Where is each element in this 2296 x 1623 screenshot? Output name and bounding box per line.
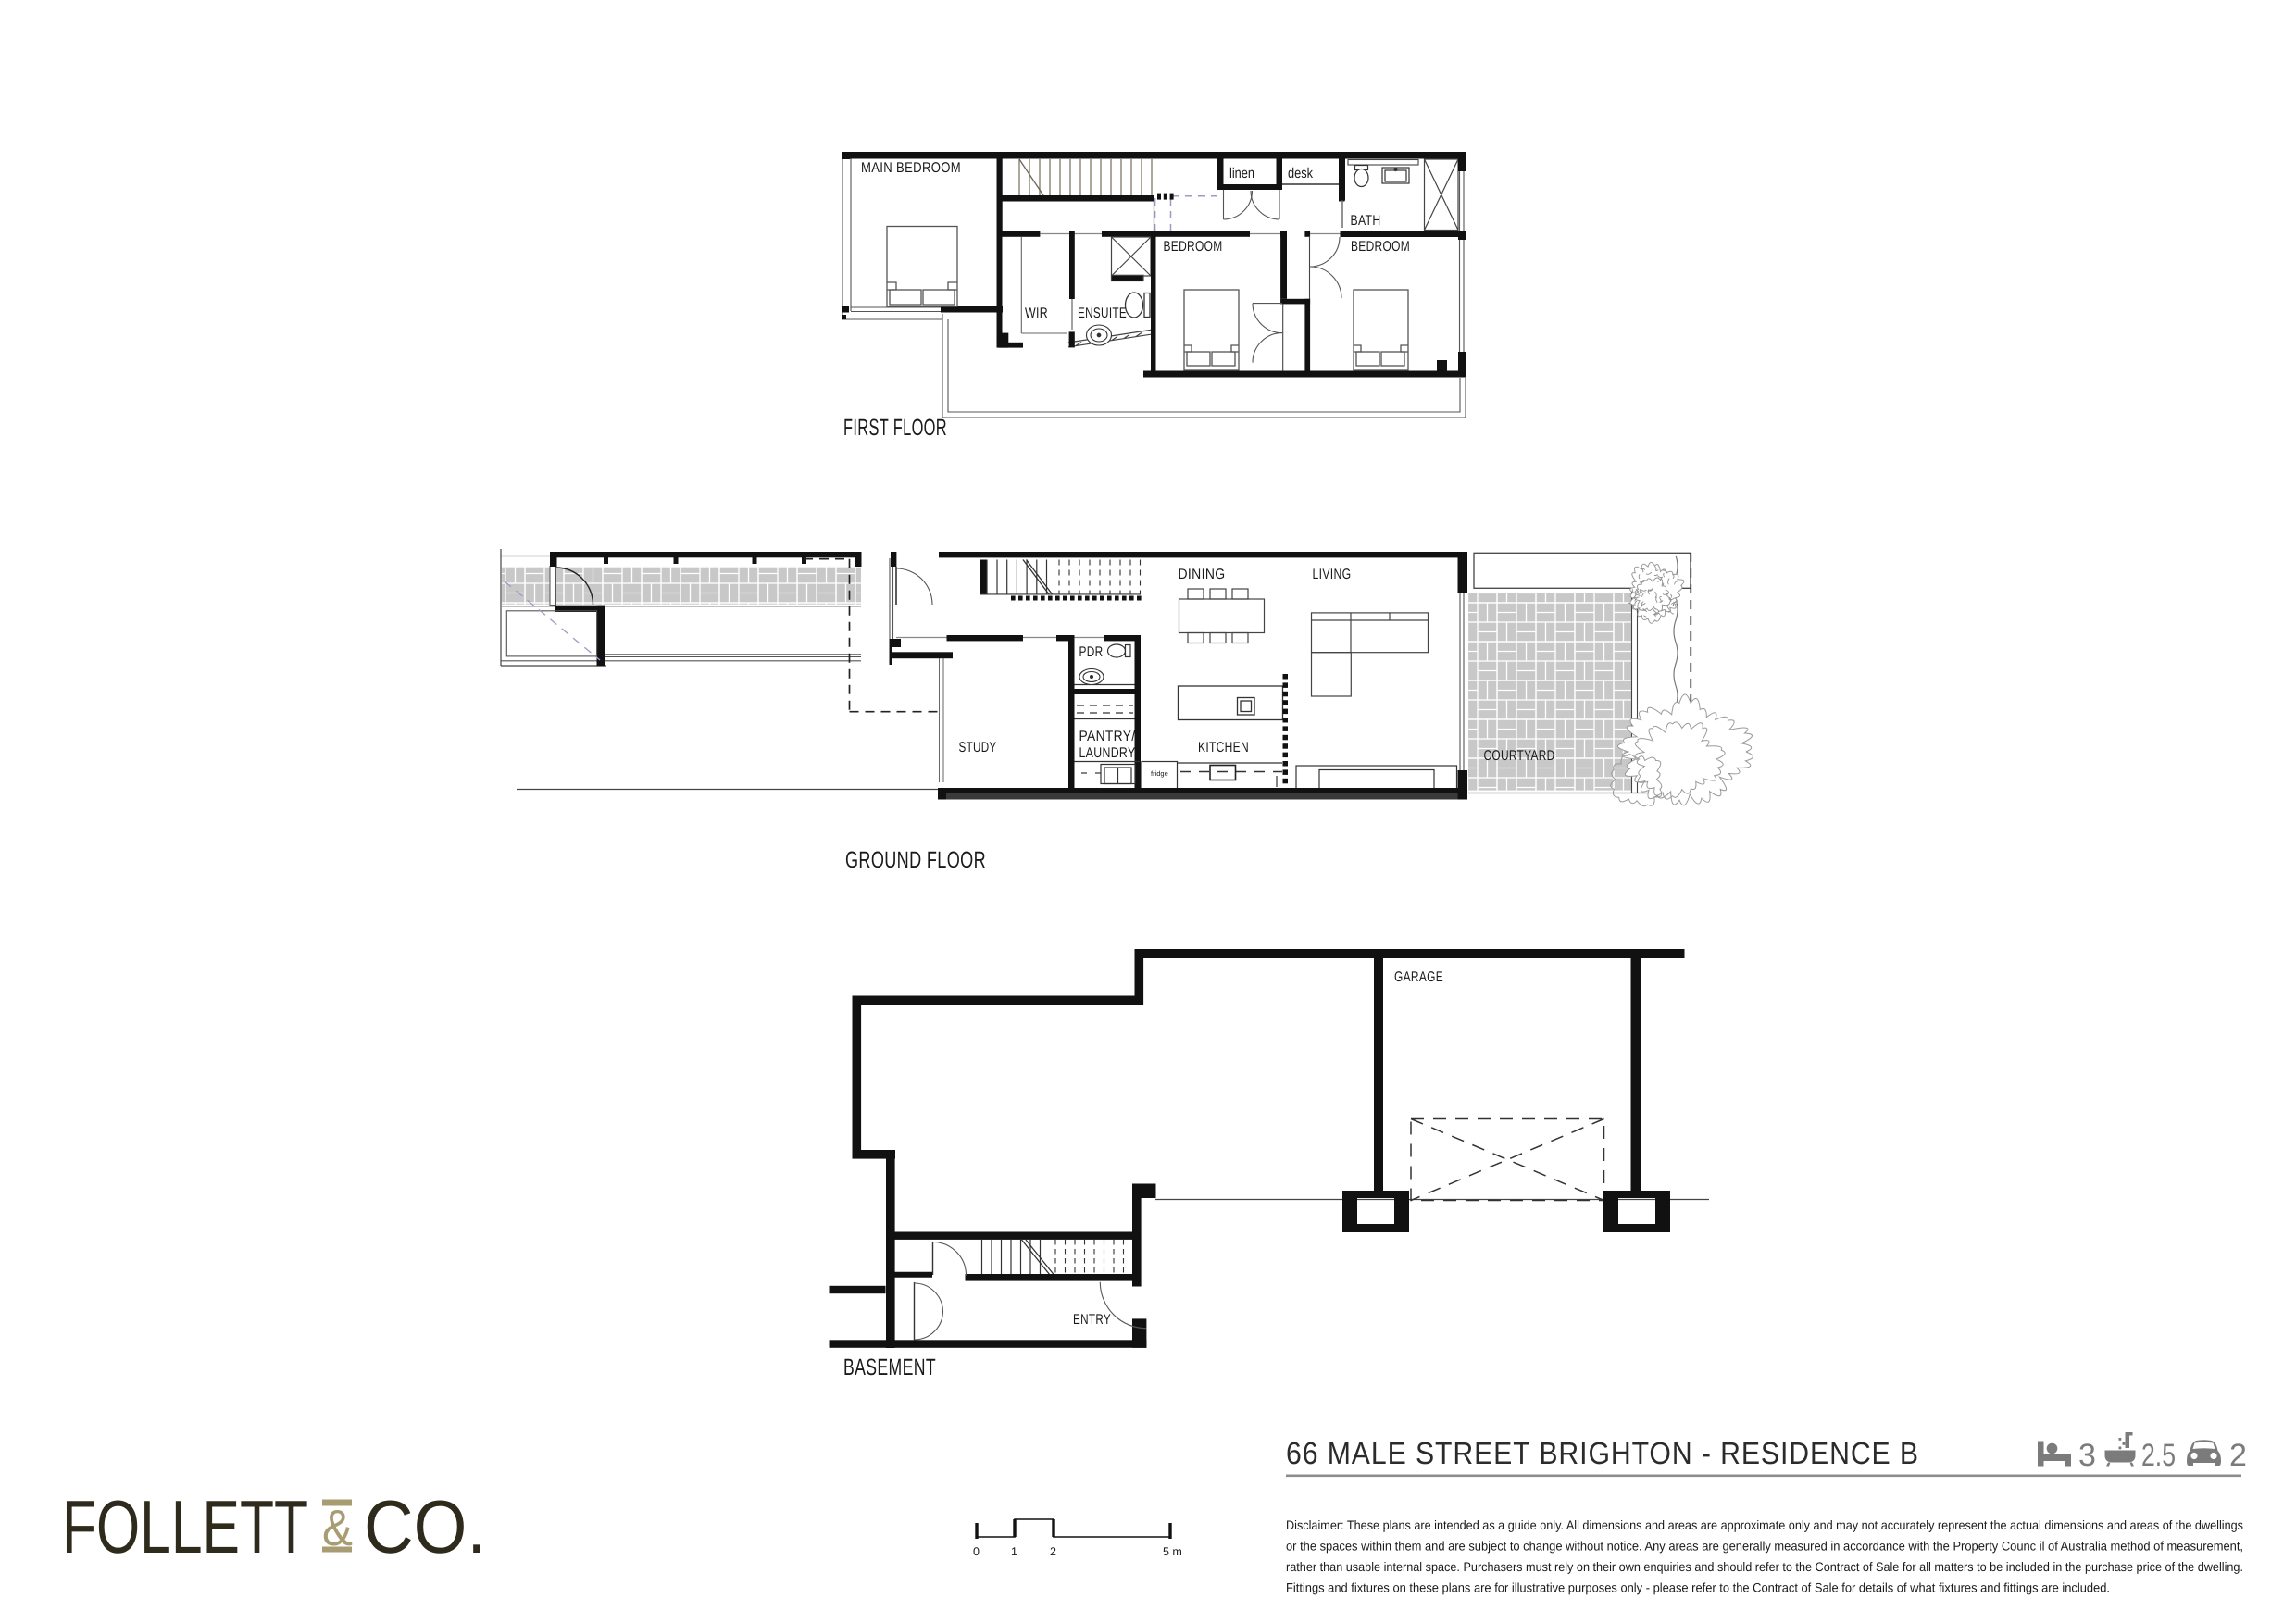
svg-text:BEDROOM: BEDROOM [1351,239,1410,255]
svg-text:fridge: fridge [1151,769,1168,778]
svg-text:ENSUITE: ENSUITE [1078,306,1127,321]
svg-text:DINING: DINING [1179,567,1226,582]
svg-text:GROUND FLOOR: GROUND FLOOR [845,847,986,873]
svg-text:COURTYARD: COURTYARD [1484,748,1555,764]
svg-text:3: 3 [2078,1438,2096,1473]
svg-text:LIVING: LIVING [1313,567,1352,582]
svg-text:BEDROOM: BEDROOM [1164,239,1223,255]
svg-text:linen: linen [1229,166,1254,181]
svg-text:Fittings and fixtures on these: Fittings and fixtures on these plans are… [1286,1581,2110,1595]
svg-text:2: 2 [1050,1545,1056,1558]
svg-text:FIRST FLOOR: FIRST FLOOR [843,415,947,441]
svg-text:1: 1 [1011,1545,1017,1558]
svg-text:BATH: BATH [1351,213,1381,229]
svg-text:MAIN BEDROOM: MAIN BEDROOM [861,160,961,176]
svg-text:PDR: PDR [1079,644,1104,660]
svg-text:or the spaces within them and: or the spaces within them and are subjec… [1286,1540,2243,1554]
svg-text:STUDY: STUDY [959,740,997,755]
svg-text:rather than usable internal sp: rather than usable internal space. Purch… [1286,1560,2243,1574]
svg-text:KITCHEN: KITCHEN [1198,740,1249,755]
svg-text:PANTRY/: PANTRY/ [1079,729,1136,744]
svg-text:desk: desk [1288,166,1313,181]
svg-text:2: 2 [2229,1438,2247,1473]
svg-text:Disclaimer: These plans are in: Disclaimer: These plans are intended as … [1286,1518,2243,1532]
svg-text:LAUNDRY: LAUNDRY [1079,745,1136,761]
svg-text:CO.: CO. [364,1486,486,1569]
svg-text:GARAGE: GARAGE [1394,969,1443,985]
svg-text:WIR: WIR [1025,306,1048,321]
svg-text:ENTRY: ENTRY [1073,1312,1111,1328]
svg-text:2.5: 2.5 [2141,1438,2176,1473]
svg-text:FOLLETT: FOLLETT [62,1486,308,1569]
svg-text:0: 0 [973,1545,980,1558]
svg-text:66 MALE STREET BRIGHTON - RESI: 66 MALE STREET BRIGHTON - RESIDENCE B [1286,1437,1919,1471]
svg-text:BASEMENT: BASEMENT [843,1355,936,1380]
svg-text:5 m: 5 m [1163,1545,1182,1558]
